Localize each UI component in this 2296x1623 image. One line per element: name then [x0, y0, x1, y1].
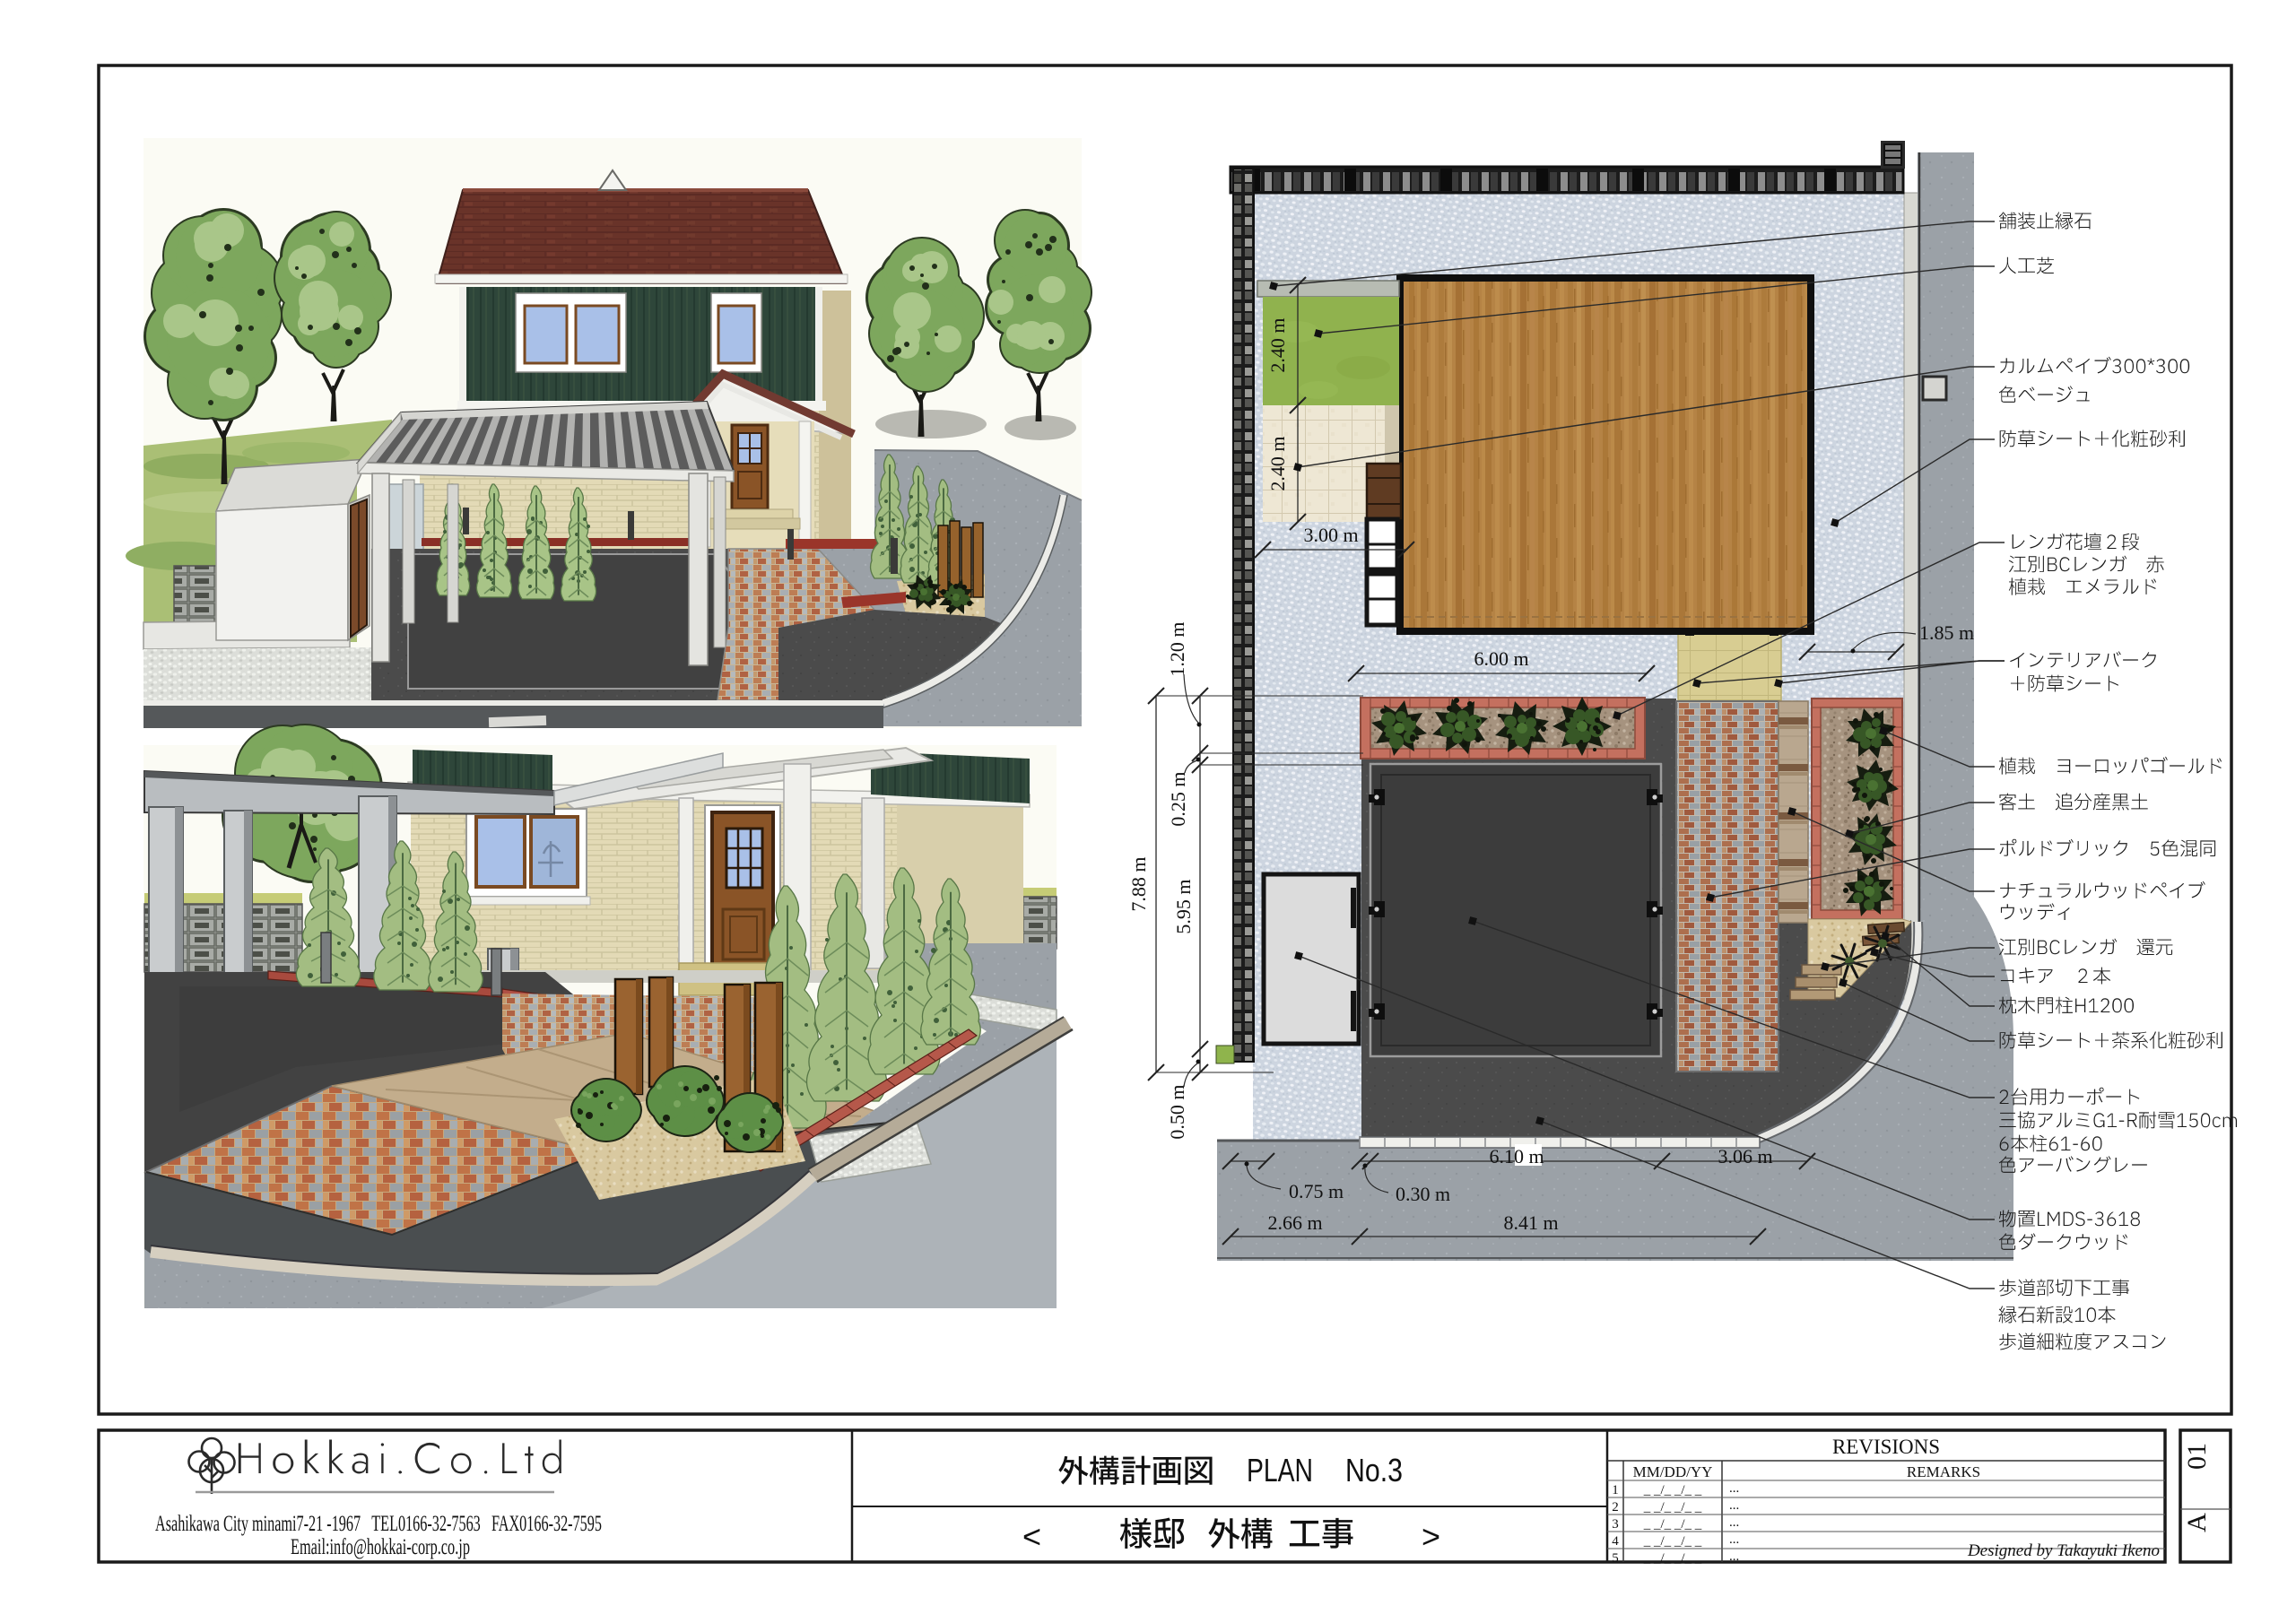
- svg-text:A: A: [2182, 1513, 2212, 1532]
- svg-text:2: 2: [1612, 1500, 1619, 1515]
- svg-text:1.85 m: 1.85 m: [1919, 621, 1974, 644]
- svg-text:2.40 m: 2.40 m: [1266, 436, 1289, 490]
- svg-text:_ _/_ _/_ _: _ _/_ _/_ _: [1643, 1517, 1702, 1532]
- svg-text:6.00 m: 6.00 m: [1474, 647, 1528, 670]
- svg-text:_ _/_ _/_ _: _ _/_ _/_ _: [1643, 1534, 1702, 1549]
- svg-text:1.20 m: 1.20 m: [1166, 621, 1188, 676]
- svg-text:REVISIONS: REVISIONS: [1832, 1436, 1940, 1458]
- svg-text:No.3: No.3: [1345, 1452, 1403, 1488]
- svg-text:5.95 m: 5.95 m: [1172, 879, 1195, 933]
- svg-text:01: 01: [2182, 1443, 2212, 1470]
- svg-text:4: 4: [1612, 1534, 1619, 1549]
- svg-text:2.40 m: 2.40 m: [1266, 317, 1289, 372]
- svg-text:...: ...: [1729, 1498, 1739, 1513]
- svg-text:0.75 m: 0.75 m: [1289, 1180, 1344, 1202]
- svg-text:Asahikawa City minami7-21 -196: Asahikawa City minami7-21 -1967 TEL0166-…: [155, 1512, 602, 1536]
- svg-text:3.06 m: 3.06 m: [1718, 1145, 1772, 1167]
- svg-text:MM/DD/YY: MM/DD/YY: [1633, 1463, 1713, 1480]
- svg-text:5: 5: [1612, 1551, 1619, 1566]
- svg-text:REMARKS: REMARKS: [1907, 1463, 1980, 1480]
- svg-text:7.88 m: 7.88 m: [1127, 856, 1150, 911]
- svg-text:_ _/_ _/_ _: _ _/_ _/_ _: [1643, 1551, 1702, 1566]
- svg-text:_ _/_ _/_ _: _ _/_ _/_ _: [1643, 1500, 1702, 1515]
- svg-text:<: <: [1022, 1518, 1041, 1555]
- svg-text:...: ...: [1729, 1481, 1739, 1496]
- svg-text:...: ...: [1729, 1532, 1739, 1547]
- svg-text:0.30 m: 0.30 m: [1396, 1183, 1450, 1205]
- svg-text:3: 3: [1612, 1517, 1619, 1532]
- svg-text:1: 1: [1612, 1483, 1619, 1497]
- svg-text:PLAN: PLAN: [1247, 1452, 1313, 1488]
- svg-text:3.00 m: 3.00 m: [1303, 524, 1358, 546]
- svg-text:Designed by Takayuki Ikeno: Designed by Takayuki Ikeno: [1967, 1541, 2160, 1560]
- svg-text:>: >: [1422, 1518, 1440, 1555]
- svg-text:0.50 m: 0.50 m: [1166, 1084, 1188, 1139]
- svg-text:8.41 m: 8.41 m: [1503, 1211, 1558, 1234]
- svg-text:Email:info@hokkai-corp.co.jp: Email:info@hokkai-corp.co.jp: [291, 1535, 470, 1559]
- svg-text:6.10 m: 6.10 m: [1489, 1145, 1544, 1167]
- svg-text:_ _/_ _/_ _: _ _/_ _/_ _: [1643, 1483, 1702, 1497]
- svg-text:2.66 m: 2.66 m: [1267, 1211, 1322, 1234]
- svg-text:...: ...: [1729, 1549, 1739, 1564]
- svg-text:...: ...: [1729, 1515, 1739, 1530]
- svg-text:0.25 m: 0.25 m: [1167, 771, 1189, 826]
